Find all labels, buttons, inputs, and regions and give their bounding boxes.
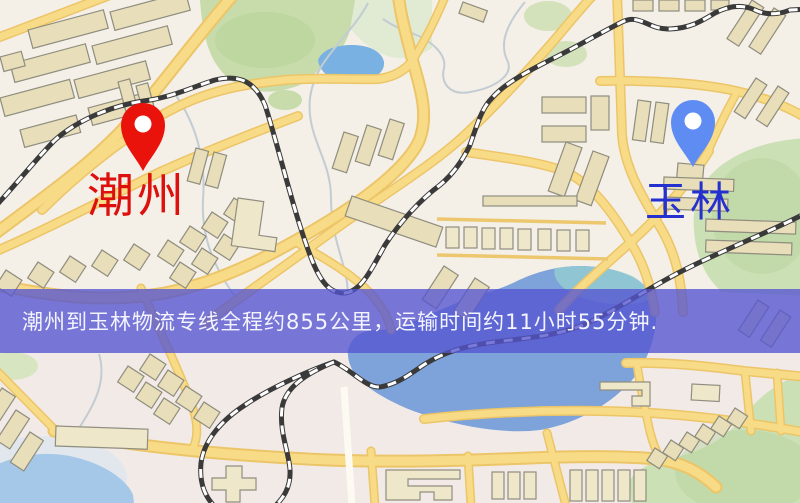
map-container: 潮州 玉林 潮州到玉林物流专线全程约855公里，运输时间约11小时55分钟. xyxy=(0,0,800,503)
route-info-text: 潮州到玉林物流专线全程约855公里，运输时间约11小时55分钟. xyxy=(0,306,658,336)
origin-label: 潮州 xyxy=(87,174,187,221)
map-image xyxy=(0,0,800,503)
destination-label: 玉林 xyxy=(645,182,735,223)
route-info-banner: 潮州到玉林物流专线全程约855公里，运输时间约11小时55分钟. xyxy=(0,289,800,353)
